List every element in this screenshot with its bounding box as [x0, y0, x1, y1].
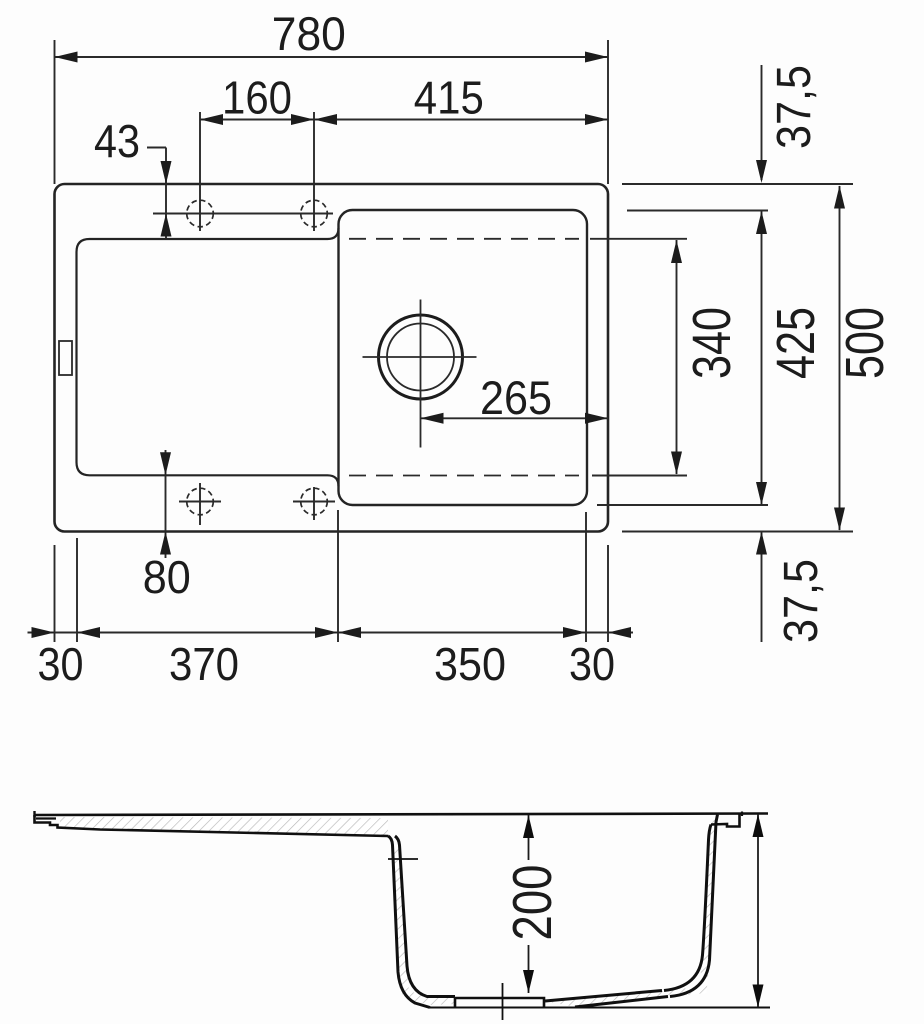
- svg-text:265: 265: [480, 371, 552, 424]
- svg-text:500: 500: [835, 307, 895, 379]
- svg-text:780: 780: [272, 7, 346, 60]
- svg-text:425: 425: [766, 307, 826, 379]
- svg-text:340: 340: [682, 307, 742, 379]
- svg-text:200: 200: [501, 865, 563, 941]
- svg-text:80: 80: [143, 551, 191, 603]
- svg-text:370: 370: [169, 638, 239, 690]
- svg-text:415: 415: [414, 72, 484, 124]
- svg-text:37,5: 37,5: [775, 559, 828, 643]
- svg-text:30: 30: [569, 638, 615, 690]
- svg-text:30: 30: [38, 638, 84, 690]
- svg-text:350: 350: [434, 638, 506, 690]
- svg-text:43: 43: [94, 115, 140, 167]
- svg-text:160: 160: [222, 72, 292, 124]
- svg-text:37,5: 37,5: [768, 65, 821, 149]
